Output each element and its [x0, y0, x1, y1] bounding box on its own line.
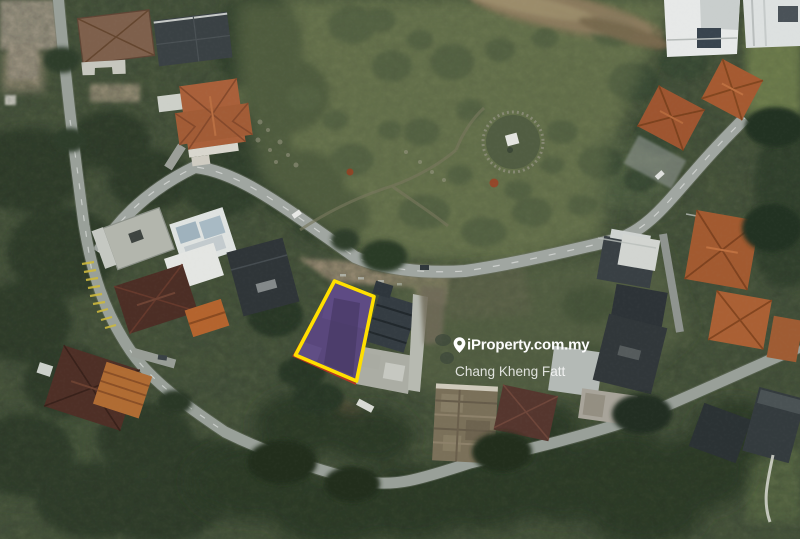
- svg-text:Chang Kheng Fatt: Chang Kheng Fatt: [455, 364, 566, 379]
- svg-text:iProperty.com.my: iProperty.com.my: [467, 336, 590, 353]
